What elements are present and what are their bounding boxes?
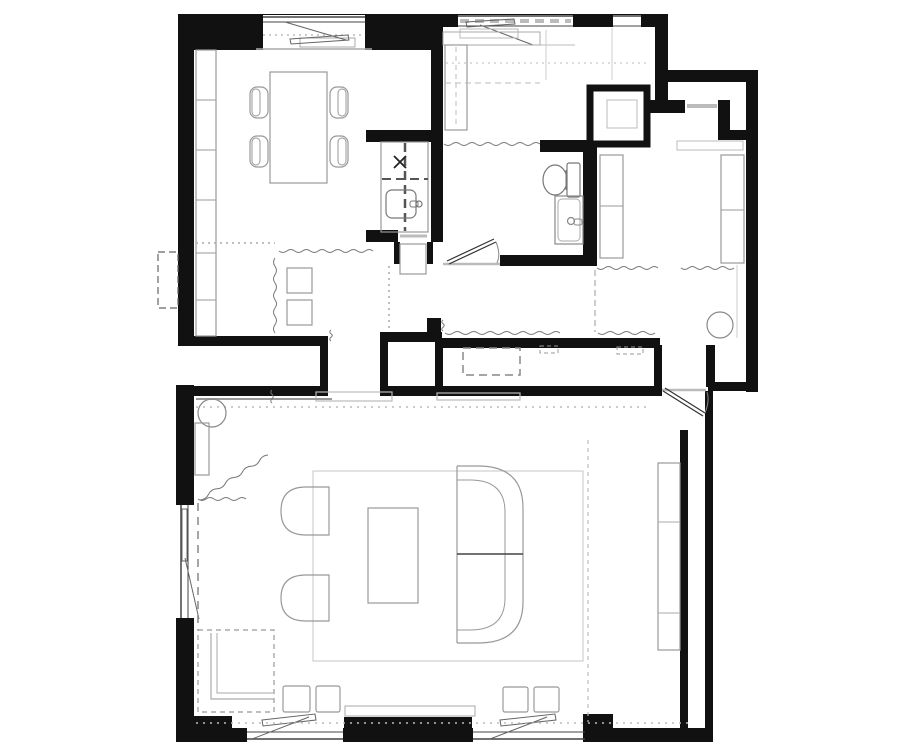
wall-bath-right	[583, 140, 597, 266]
kitchen-stool-2	[287, 300, 312, 325]
wall-corner-step	[583, 714, 613, 742]
wall-left-upper	[178, 14, 194, 346]
wall-top-right	[655, 70, 758, 82]
wall-step-vertical	[655, 14, 668, 112]
coffee-table	[368, 508, 418, 603]
dressing-sill	[677, 141, 743, 150]
wall-entry-bottom	[708, 382, 758, 391]
wall-hall-bottom-left	[380, 332, 442, 342]
dining-chair-3	[330, 87, 348, 118]
window2-open-diagonal	[480, 25, 533, 45]
wall-stub-a	[394, 242, 400, 264]
wall-step-b	[427, 318, 441, 334]
hall-bench	[400, 244, 426, 274]
hall-curtain-1	[445, 332, 560, 335]
dining-table	[270, 72, 327, 183]
skylight-dashed	[463, 348, 520, 375]
hall-curtain-2	[598, 332, 655, 335]
vanity-outer	[555, 196, 583, 244]
dressing-curtain-1	[597, 267, 658, 270]
kitchen-faucet	[416, 201, 422, 207]
vanity-basin	[558, 199, 580, 241]
ac-unit-dashed	[158, 252, 178, 308]
wall-bottom-pier	[344, 717, 472, 742]
dining-chair-1-inner	[252, 89, 260, 116]
wall-kitchen-bottom	[178, 336, 320, 346]
kitchen-counter	[196, 50, 216, 336]
armchair-1	[281, 487, 329, 535]
desk-l-line-2	[217, 633, 274, 693]
wall-stub-b	[427, 242, 433, 264]
toilet-bowl	[543, 165, 567, 195]
bath-door-leaf	[447, 239, 496, 264]
dining-chair-2	[250, 136, 268, 167]
curtain-squiggle-step	[442, 320, 445, 331]
dining-chair-1	[250, 87, 268, 118]
bath-door-arc	[496, 242, 499, 263]
wall-bath-bottom	[500, 255, 597, 266]
vanity-faucet-handle	[574, 219, 582, 225]
dining-chair-4-inner	[338, 138, 346, 165]
living-curtain-arc	[200, 455, 268, 500]
floor-plan-viewport: Apartment floor plan drawing	[0, 0, 920, 755]
dressing-chair-circle	[707, 312, 733, 338]
desk-l-line-1	[211, 633, 274, 699]
wall-pocket-right	[435, 342, 443, 390]
duct-shaft	[590, 88, 647, 144]
window-niche-top1	[263, 15, 365, 50]
dining-chair-4	[330, 136, 348, 167]
vanity-faucet	[568, 218, 575, 225]
dining-chair-3-inner	[338, 89, 346, 116]
toilet-tank	[567, 163, 580, 197]
bedroom-curtain	[444, 143, 540, 146]
dressing-wardrobe-right	[721, 155, 744, 263]
curtain-squiggle-corridor	[330, 330, 333, 341]
wall-right-lower-inner	[680, 430, 688, 742]
ottoman-4	[534, 687, 559, 712]
armchair-2	[281, 575, 329, 621]
ottoman-3	[503, 687, 528, 712]
living-radiator	[345, 706, 475, 716]
living-rug	[313, 471, 583, 661]
kitchen-sink	[386, 190, 416, 218]
dining-chair-2-inner	[252, 138, 260, 165]
wall-living-top-right	[388, 386, 654, 396]
window-niche-bottom2	[473, 728, 585, 742]
window-niche-top3	[613, 15, 641, 27]
floor-plan-drawing	[0, 0, 920, 755]
wall-vestibule-a	[645, 100, 685, 113]
wall-living-top-left	[194, 386, 328, 396]
kitchen-curtain-vertical	[274, 258, 277, 333]
front-door-leaf	[663, 388, 705, 416]
wall-entry-jamb-right	[706, 345, 715, 387]
sofa-cushion	[457, 480, 505, 630]
wall-right-lower-outer	[705, 391, 713, 742]
wall-entry-jamb-left	[654, 345, 662, 396]
wall-right-upper	[746, 70, 758, 392]
kitchen-stool-1	[287, 268, 312, 293]
ottoman-1	[283, 686, 310, 712]
ottoman-2	[316, 686, 340, 712]
wall-vestibule-c	[726, 130, 746, 140]
dressing-curtain-2	[681, 267, 734, 270]
window2-radiator	[460, 29, 518, 38]
desk-dashed-outline	[198, 630, 274, 712]
kitchen-curtain-horizontal	[279, 250, 373, 253]
hall-dashed-hook-2	[617, 347, 643, 354]
living-shelf-left	[195, 423, 209, 475]
wall-divider-kitchen-bedroom	[431, 24, 443, 242]
tv-unit	[658, 463, 680, 650]
